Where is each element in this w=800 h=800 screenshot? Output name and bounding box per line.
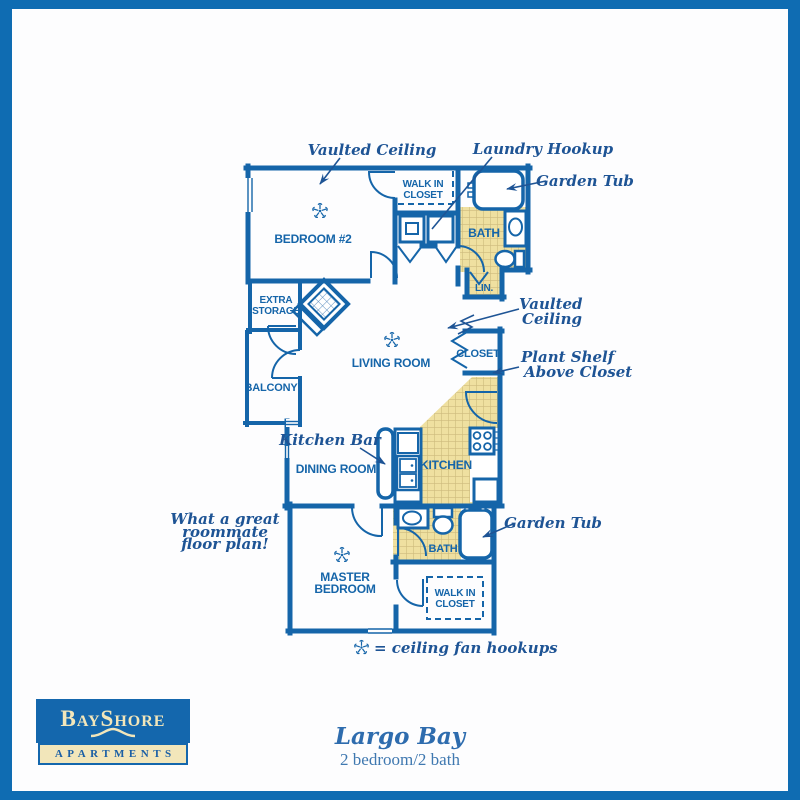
plan-name: Largo Bay xyxy=(250,723,550,750)
window xyxy=(286,419,298,427)
walk-in-closet-bottom-label: WALK IN xyxy=(435,588,476,599)
vaulted-ceiling-top-note: Vaulted Ceiling xyxy=(308,141,437,159)
kitchen-sink-basin xyxy=(400,459,416,472)
bath-top-toilet-bowl xyxy=(496,251,515,267)
walk-in-closet-top-label: CLOSET xyxy=(403,190,442,201)
bifold-door xyxy=(435,246,457,262)
tub-faucet-icon xyxy=(468,192,473,197)
bath-bottom-toilet-bowl xyxy=(434,517,453,534)
floor-plan: BEDROOM #2 WALK IN CLOSET BATH LIN. EXTR… xyxy=(0,0,800,800)
legend-text: = ceiling fan hookups xyxy=(374,639,558,657)
walk-in-closet-bottom-label: CLOSET xyxy=(435,599,474,610)
door-arc xyxy=(397,579,423,606)
window xyxy=(245,178,255,212)
dining-room-label: DINING ROOM xyxy=(296,462,377,476)
kitchen-sink-basin xyxy=(400,474,416,487)
linen-label: LIN. xyxy=(475,283,494,294)
bedroom2-label: BEDROOM #2 xyxy=(274,232,352,246)
bath-top-toilet-tank xyxy=(515,251,524,267)
bath-top-label: BATH xyxy=(468,226,500,240)
garden-tub-bottom-note: Garden Tub xyxy=(504,514,602,532)
closet-label: CLOSET xyxy=(456,348,500,360)
laundry-hookup-note: Laundry Hookup xyxy=(472,140,614,158)
garden-tub-top xyxy=(474,171,523,209)
roommate-note: floor plan! xyxy=(180,535,268,553)
extra-storage-label: EXTRA xyxy=(260,295,293,306)
plan-spec: 2 bedroom/2 bath xyxy=(250,750,550,770)
sink-drain-icon xyxy=(411,479,414,482)
windows xyxy=(245,178,392,636)
wave-icon xyxy=(88,727,138,738)
bath-top-sink-basin xyxy=(509,219,522,236)
walk-in-closet-top-label: WALK IN xyxy=(403,179,444,190)
ceiling-fan-icon xyxy=(312,204,327,219)
logo-box: BAYSHORE xyxy=(36,699,190,743)
plant-shelf-note: Above Closet xyxy=(522,363,632,381)
bayshore-logo: BAYSHORE APARTMENTS xyxy=(36,699,190,765)
kitchen-label: KITCHEN xyxy=(420,458,472,472)
kitchen-bar-note: Kitchen Bar xyxy=(278,431,382,449)
window xyxy=(368,626,392,636)
bath-bottom-label: BATH xyxy=(429,543,458,555)
garden-tub-top-note: Garden Tub xyxy=(536,172,634,190)
garden-tub-bottom xyxy=(460,510,492,558)
logo-apartments-band: APARTMENTS xyxy=(38,743,188,765)
logo-apartments-label: APARTMENTS xyxy=(50,748,175,760)
stove xyxy=(470,428,494,454)
dishwasher xyxy=(398,433,418,453)
balcony-label: BALCONY xyxy=(245,382,299,394)
extra-storage-label: STORAGE xyxy=(252,306,300,317)
ceiling-fan-icon xyxy=(334,548,349,563)
sink-drain-icon xyxy=(411,464,414,467)
door-arc xyxy=(369,172,395,198)
ceiling-fan-icon xyxy=(384,333,399,348)
bifold-door xyxy=(398,246,422,262)
door-arc xyxy=(352,507,382,536)
vaulted-ceiling-right-note: Ceiling xyxy=(522,310,582,328)
washer-door xyxy=(406,223,418,234)
living-room-label: LIVING ROOM xyxy=(352,356,431,370)
refrigerator xyxy=(474,479,498,502)
ceiling-fan-icon xyxy=(354,640,369,654)
master-bedroom-label: BEDROOM xyxy=(314,582,375,596)
bath-bottom-sink-basin xyxy=(403,512,421,525)
